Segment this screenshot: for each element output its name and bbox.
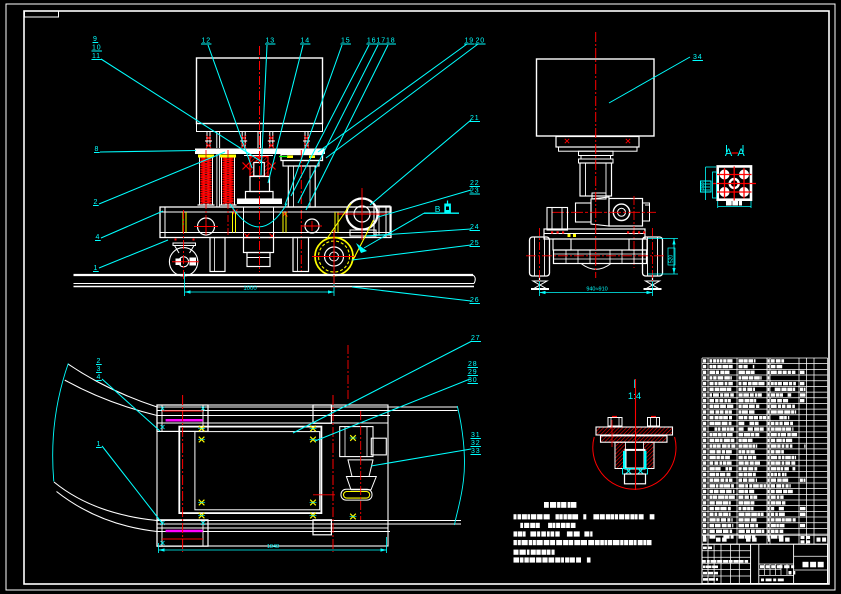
svg-text:9: 9: [93, 36, 98, 43]
svg-text:4: 4: [96, 234, 101, 241]
svg-text:22: 22: [470, 180, 479, 187]
svg-text:1: 1: [97, 441, 102, 448]
svg-text:17: 17: [377, 38, 386, 45]
svg-text:21: 21: [470, 115, 479, 122]
svg-text:1: 1: [94, 265, 99, 272]
svg-text:A: A: [737, 147, 745, 159]
svg-text:940≈910: 940≈910: [586, 287, 607, 293]
svg-text:20: 20: [476, 38, 485, 45]
svg-text:29: 29: [468, 369, 477, 376]
svg-text:1848: 1848: [267, 544, 279, 550]
svg-text:18: 18: [386, 38, 395, 45]
svg-text:2: 2: [97, 358, 102, 365]
svg-text:13: 13: [266, 38, 275, 45]
svg-text:26: 26: [470, 297, 479, 304]
svg-text:240: 240: [700, 182, 705, 190]
svg-text:B: B: [435, 204, 441, 214]
svg-text:19: 19: [465, 38, 474, 45]
svg-text:1:4: 1:4: [628, 391, 641, 402]
svg-text:3: 3: [97, 366, 102, 373]
svg-text:28: 28: [468, 361, 477, 368]
svg-text:33: 33: [471, 448, 480, 455]
svg-text:10: 10: [92, 45, 101, 52]
svg-text:23: 23: [470, 188, 479, 195]
svg-text:32: 32: [471, 440, 480, 447]
svg-text:25: 25: [470, 240, 479, 247]
svg-text:16: 16: [367, 38, 376, 45]
svg-text:4: 4: [97, 374, 102, 381]
svg-text:31: 31: [471, 432, 480, 439]
svg-text:27: 27: [471, 335, 480, 342]
svg-text:520: 520: [668, 255, 674, 264]
svg-text:1000: 1000: [243, 286, 257, 292]
svg-text:15: 15: [341, 38, 350, 45]
svg-text:14: 14: [301, 38, 310, 45]
svg-text:30: 30: [468, 377, 477, 384]
svg-text:24: 24: [470, 224, 479, 231]
svg-text:12: 12: [202, 38, 211, 45]
svg-text:34: 34: [693, 54, 702, 61]
svg-text:8: 8: [95, 146, 100, 153]
svg-text:2: 2: [94, 199, 99, 206]
svg-text:11: 11: [92, 53, 101, 60]
